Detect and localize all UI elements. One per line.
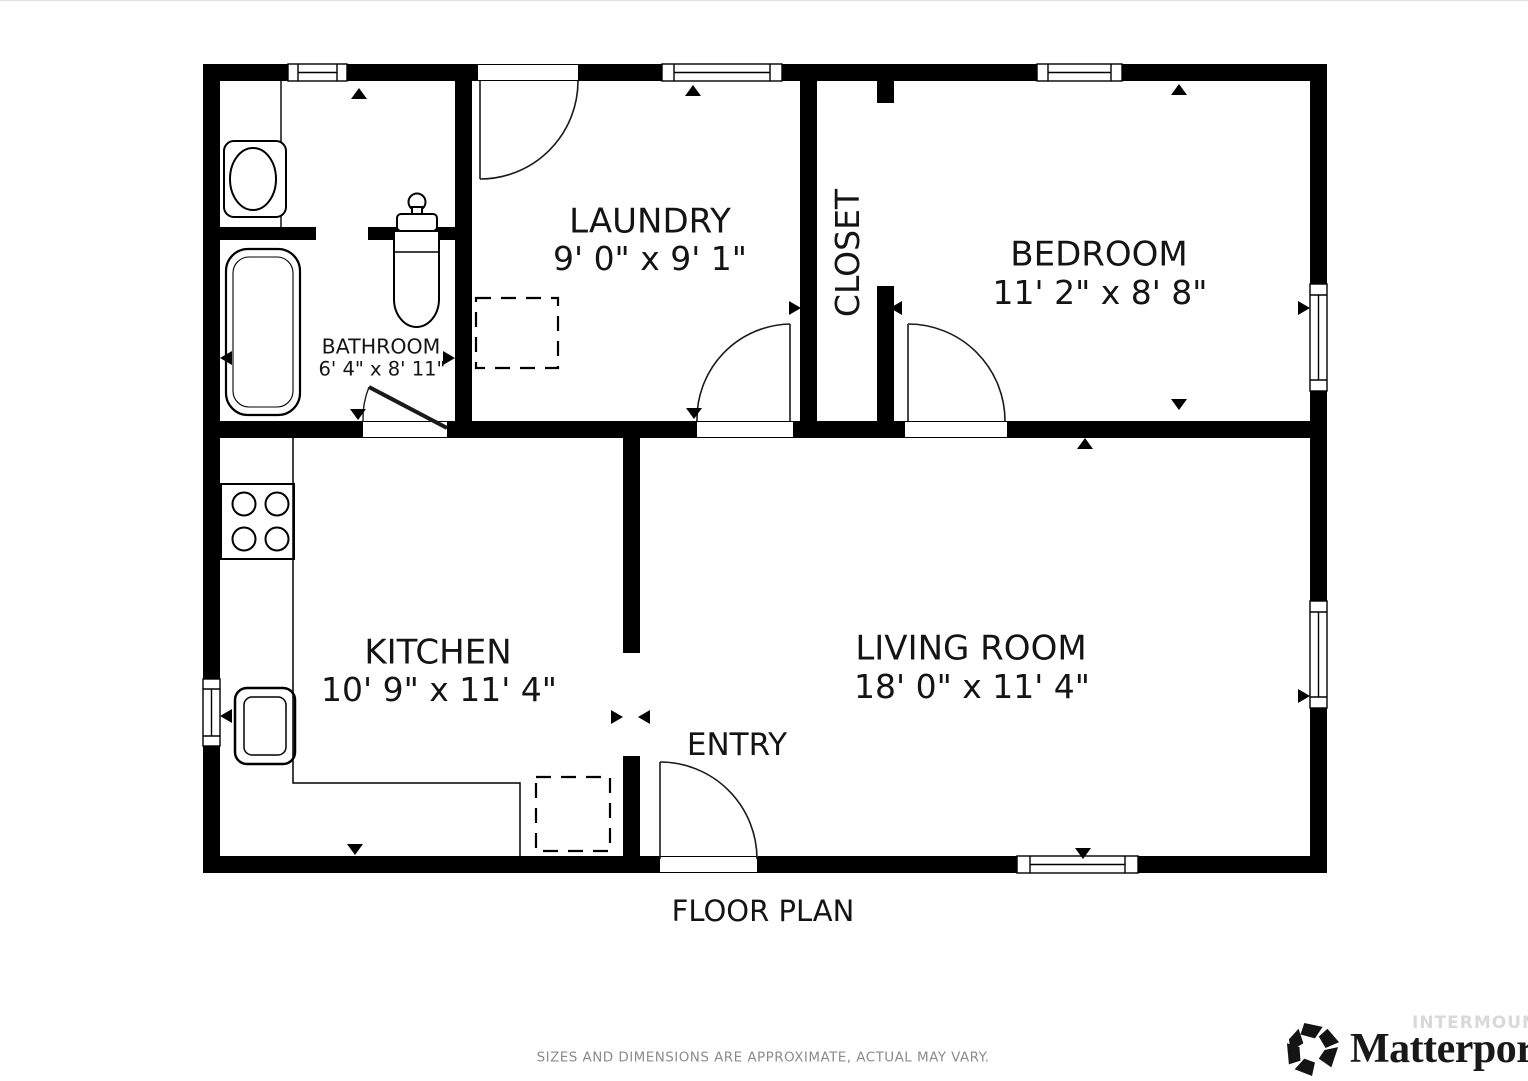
bathroom-room-label: BATHROOM	[322, 336, 441, 359]
living-room-label: LIVING ROOM	[855, 630, 1086, 667]
floor-plan-page: LAUNDRY 9' 0" x 9' 1" BATHROOM 6' 4" x 8…	[0, 0, 1528, 1081]
appliance-dashed-icon	[476, 298, 558, 368]
kitchen-room-dims: 10' 9" x 11' 4"	[321, 672, 557, 708]
laundry-room-dims: 9' 0" x 9' 1"	[553, 241, 747, 277]
closet-room-label: CLOSET	[830, 189, 866, 317]
window-right-living	[1310, 601, 1327, 708]
entry-label: ENTRY	[687, 728, 787, 762]
stove-icon	[221, 484, 294, 559]
laundry-room-label: LAUNDRY	[569, 203, 731, 240]
kitchen-room-label: KITCHEN	[364, 634, 511, 671]
appliance-dashed-icon	[536, 777, 610, 851]
window-bottom-living	[1017, 856, 1138, 873]
bedroom-room-label: BEDROOM	[1010, 236, 1187, 273]
disclaimer-text: SIZES AND DIMENSIONS ARE APPROXIMATE, AC…	[537, 1051, 990, 1066]
window-left-kitchen	[203, 679, 220, 746]
kitchen-sink-icon	[235, 688, 295, 764]
floor-plan-title: FLOOR PLAN	[672, 896, 855, 928]
entry-door	[660, 762, 757, 859]
matterport-logo: Matterport®	[1286, 1019, 1528, 1079]
bathtub-icon	[226, 249, 300, 415]
bedroom-room-dims: 11' 2" x 8' 8"	[993, 275, 1208, 311]
laundry-top-door	[480, 81, 578, 179]
window-right-bedroom	[1310, 284, 1327, 391]
bathroom-room-dims: 6' 4" x 8' 11"	[318, 358, 445, 379]
laundry-bottom-door	[697, 324, 790, 421]
fixtures	[221, 81, 610, 856]
matterport-logo-icon	[1286, 1021, 1340, 1077]
matterport-wordmark: Matterport®	[1350, 1025, 1528, 1073]
bathroom-sink-icon	[224, 141, 286, 217]
window-top-bedroom	[1037, 64, 1122, 81]
toilet-icon	[394, 194, 439, 328]
window-top-bathroom	[288, 64, 347, 81]
bedroom-door	[908, 324, 1005, 421]
window-top-laundry	[662, 64, 782, 81]
living-room-dims: 18' 0" x 11' 4"	[854, 669, 1090, 705]
